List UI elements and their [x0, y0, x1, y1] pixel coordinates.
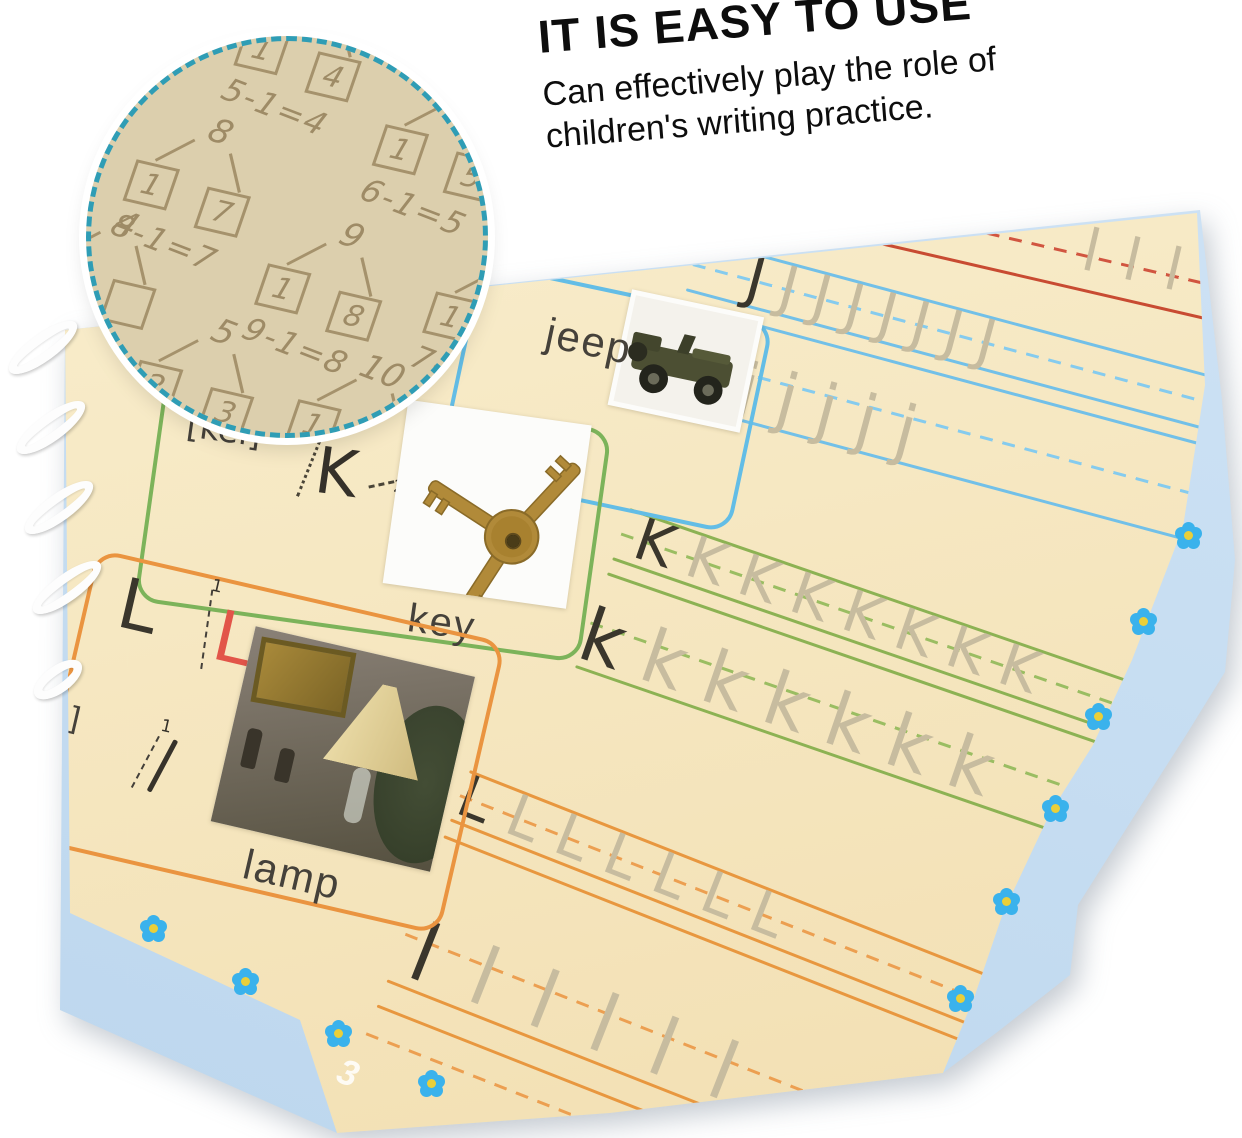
- trace-letter: k: [755, 661, 820, 745]
- bond-arm: [158, 339, 199, 362]
- trace-letter: j: [769, 365, 805, 436]
- trace-letter: k: [878, 703, 943, 787]
- trace-letter: L: [596, 824, 647, 890]
- trace-letter: J: [806, 266, 838, 326]
- picture-frame: [250, 636, 356, 718]
- flower-icon: [241, 977, 250, 986]
- trace-letter: K: [836, 581, 891, 648]
- lamp-photo: [211, 626, 475, 871]
- trace-letter: J: [938, 302, 970, 362]
- trace-letter: j: [848, 386, 884, 457]
- trace-letter: J: [905, 293, 937, 353]
- bond-arm: [86, 231, 101, 254]
- product-image: IT IS EASY TO USE Can effectively play t…: [0, 0, 1242, 1138]
- bond-arm: [134, 246, 146, 286]
- trace-letter: K: [940, 617, 995, 684]
- trace-letter: K: [680, 527, 735, 594]
- trace-letter: j: [888, 397, 924, 468]
- flower-icon: [1184, 531, 1193, 540]
- trace-letter: k: [694, 640, 759, 724]
- bond-box: 4: [304, 51, 362, 102]
- trace-letter: j: [809, 375, 845, 446]
- jeep-word: jeep: [541, 309, 636, 374]
- lamp-lower-stroke: 1: [131, 726, 195, 805]
- bond-box: 1: [122, 159, 180, 210]
- trace-letter: J: [872, 284, 904, 344]
- stroke-letter-k: K: [311, 434, 363, 513]
- bond-arm: [155, 139, 196, 162]
- bond-box: 1: [254, 263, 312, 314]
- flower-icon: [1002, 897, 1011, 906]
- magnifier-content: 5 1 4 5-1=4 6 1 5 6-1=5 8: [86, 36, 488, 438]
- magnifier-inset: 5 1 4 5-1=4 6 1 5 6-1=5 8: [86, 36, 488, 438]
- bottle: [240, 727, 264, 769]
- lamp-word: lamp: [239, 840, 346, 909]
- trace-letter: l: [639, 1007, 689, 1090]
- trace-letter: k: [816, 682, 881, 766]
- lamp-base: [342, 766, 372, 825]
- trace-letter: K: [784, 563, 839, 630]
- bond-box: 2: [126, 360, 184, 411]
- flower-icon: [1051, 804, 1060, 813]
- trace-letter: l: [1159, 240, 1188, 300]
- jeep-illustration: [613, 295, 758, 427]
- key-stroke-order: K 1 2: [290, 427, 394, 535]
- bottle: [274, 747, 296, 784]
- bond-arm: [229, 153, 241, 193]
- bond-arm: [317, 379, 358, 402]
- stroke-number-1: 1: [210, 576, 225, 598]
- stroke-guide-dashed: [368, 480, 394, 488]
- stroke-number-1: 1: [159, 716, 174, 738]
- bond-box: 1: [233, 36, 291, 75]
- trace-letter: l: [519, 960, 569, 1043]
- trace-letter: L: [742, 881, 793, 947]
- row-capital-l: L L L L L L L: [450, 766, 793, 947]
- trace-letter: L: [694, 862, 745, 928]
- flower-icon: [334, 1029, 343, 1038]
- bond-arm: [404, 104, 445, 127]
- trace-letter: J: [971, 310, 1003, 370]
- trace-letter: K: [732, 545, 787, 612]
- bond-box: 1: [422, 291, 480, 342]
- bond-arm: [232, 354, 244, 394]
- bond-box: 1: [284, 399, 342, 438]
- trace-letter: k: [632, 619, 697, 703]
- trace-letter: J: [773, 257, 805, 317]
- trace-letter: K: [888, 599, 943, 666]
- flower-icon: [956, 994, 965, 1003]
- trace-letter: L: [548, 805, 599, 871]
- trace-letter: k: [939, 724, 1004, 808]
- trace-letter: K: [992, 635, 1047, 702]
- trace-letter: l: [698, 1031, 748, 1114]
- lamp-capital-letter: L: [110, 562, 166, 651]
- trace-letter: J: [839, 275, 871, 335]
- flower-icon: [427, 1079, 436, 1088]
- flower-icon: [149, 924, 158, 933]
- flower-icon: [1094, 712, 1103, 721]
- bond-arm: [286, 243, 327, 266]
- bond-box: 7: [193, 186, 251, 237]
- bond-arm: [360, 257, 372, 297]
- trace-letter: l: [579, 983, 629, 1066]
- lamp-illustration: [211, 626, 475, 871]
- trace-letter: L: [499, 785, 550, 851]
- trace-letter: l: [1118, 230, 1147, 290]
- bond-box: 1: [372, 124, 430, 175]
- bond-box: 5: [443, 151, 488, 202]
- trace-letter: L: [645, 843, 696, 909]
- bond-arm: [454, 271, 488, 294]
- bond-arm: [391, 393, 403, 433]
- flower-icon: [1139, 617, 1148, 626]
- trace-letter: l: [1077, 221, 1106, 281]
- trace-letter: l: [459, 936, 509, 1019]
